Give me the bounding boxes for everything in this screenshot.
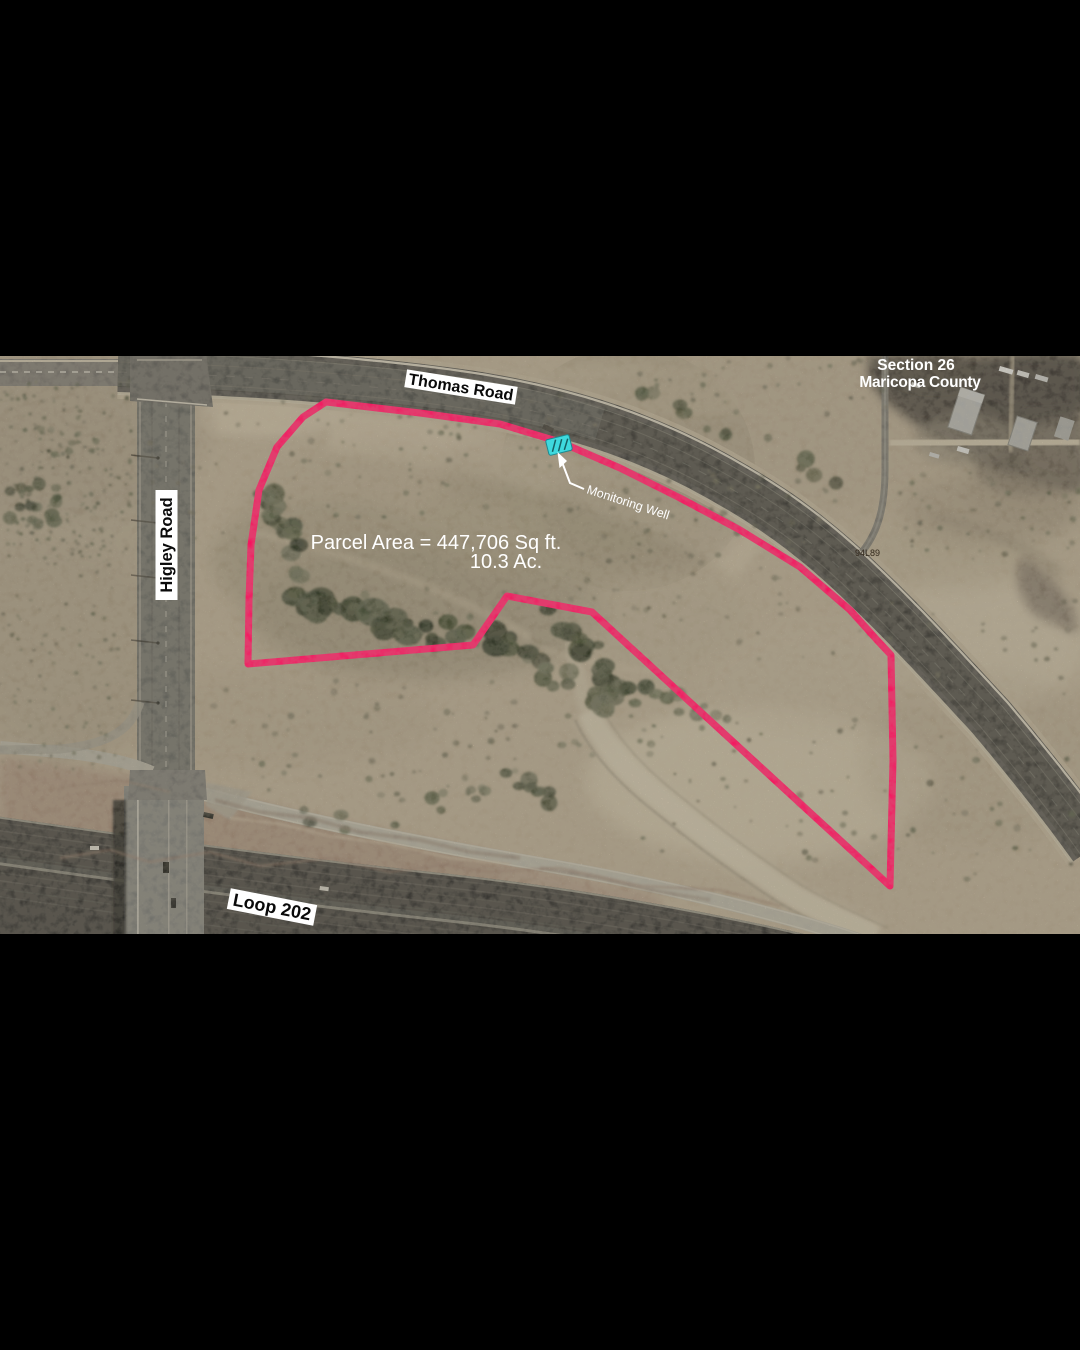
svg-text:10.3 Ac.: 10.3 Ac. xyxy=(470,551,542,573)
svg-text:Maricopa County: Maricopa County xyxy=(859,374,981,391)
svg-text:Section 26: Section 26 xyxy=(877,357,955,374)
svg-text:94L89: 94L89 xyxy=(855,548,880,558)
svg-text:Higley Road: Higley Road xyxy=(158,497,176,592)
